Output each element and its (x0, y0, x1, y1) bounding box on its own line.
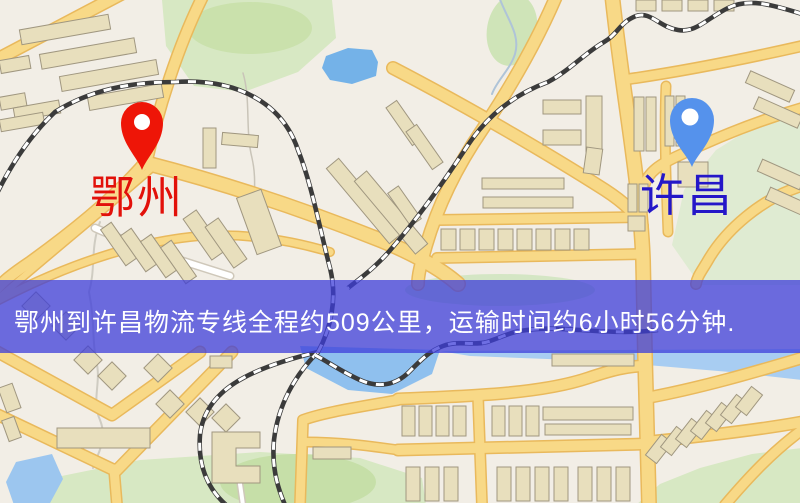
map-canvas (0, 0, 800, 503)
destination-pin-hole (682, 109, 699, 126)
map-layers (0, 0, 800, 503)
origin-pin-hole (134, 114, 150, 130)
origin-label: 鄂州 (90, 176, 184, 221)
destination-label: 许昌 (640, 174, 734, 219)
route-banner-text: 鄂州到许昌物流专线全程约509公里，运输时间约6小时56分钟. (14, 303, 735, 339)
route-banner: 鄂州到许昌物流专线全程约509公里，运输时间约6小时56分钟. (0, 280, 800, 353)
map[interactable]: 鄂州 许昌 鄂州到许昌物流专线全程约509公里，运输时间约6小时56分钟. (0, 0, 800, 503)
